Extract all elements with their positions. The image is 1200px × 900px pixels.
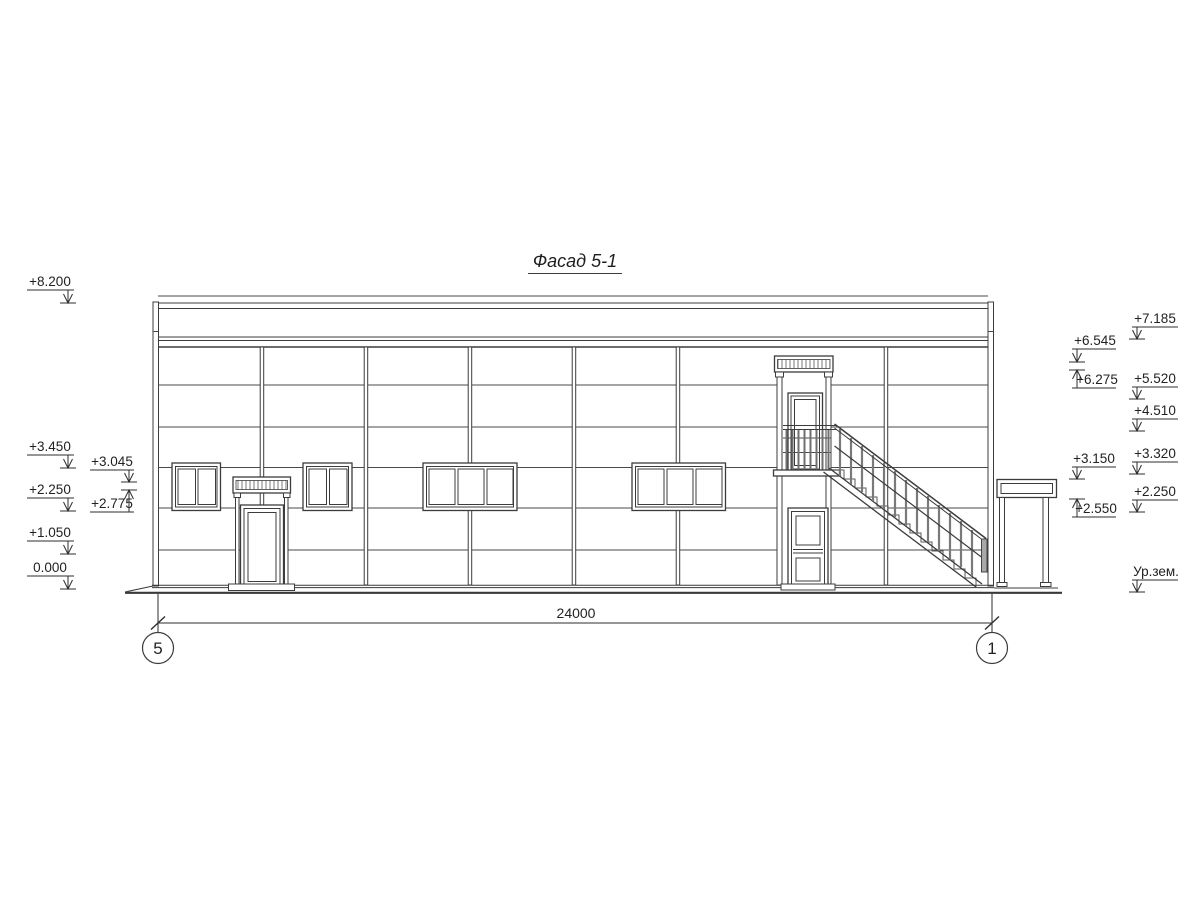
window-frame (172, 463, 221, 511)
axis-label-left: 5 (153, 639, 162, 658)
window-frame (632, 463, 726, 511)
tower-canopy-hatch (778, 360, 831, 369)
right-corner-post (988, 302, 994, 586)
elevation-value: +2.250 (29, 482, 71, 497)
porch-post (1043, 498, 1049, 583)
drawing-title: Фасад 5-1 (533, 251, 617, 271)
tower-post (777, 377, 782, 585)
elevation-mark: +6.275 (1069, 370, 1118, 388)
window-frame (303, 463, 352, 511)
sheet-background (0, 0, 1200, 900)
canopy-post (285, 498, 289, 586)
porch-post (1000, 498, 1005, 583)
elevation-value: +3.450 (29, 439, 71, 454)
drawing-title-group: Фасад 5-1 (528, 251, 622, 274)
elevation-value: +8.200 (29, 274, 71, 289)
elevation-value: +1.050 (29, 525, 71, 540)
ground-level-label: Ур.зем. (1133, 564, 1179, 579)
stair-rail-end-post (982, 539, 988, 572)
elevation-value: 0.000 (33, 560, 67, 575)
left-corner-post (153, 302, 159, 586)
elevation-value: +3.150 (1073, 451, 1115, 466)
porch-post-base (997, 583, 1007, 587)
elevation-value: +2.550 (1075, 501, 1117, 516)
elevation-value: +6.545 (1074, 333, 1116, 348)
entrance-canopy-hatch (236, 481, 288, 490)
facade-drawing: Фасад 5-1 (0, 0, 1200, 900)
tower-post-cap (825, 372, 833, 377)
entrance-door-frame (241, 505, 284, 585)
entrance-threshold (229, 584, 295, 591)
dimension-value: 24000 (557, 605, 596, 621)
axis-label-right: 1 (987, 639, 996, 658)
window-4 (632, 463, 726, 511)
elevation-value: +2.775 (91, 496, 133, 511)
elevation-value: +5.520 (1134, 371, 1176, 386)
mullion (572, 347, 576, 585)
window-2 (303, 463, 352, 511)
elevation-value: +2.250 (1134, 484, 1176, 499)
porch-canopy (997, 480, 1057, 498)
elevation-mark: +2.550 (1069, 499, 1117, 517)
mullion (364, 347, 368, 585)
elevation-value: +4.510 (1134, 403, 1176, 418)
facade-drawing-sheet: Фасад 5-1 (0, 0, 1200, 900)
tower-threshold (781, 584, 835, 590)
canopy-post-cap (234, 493, 241, 498)
lower-door-frame (788, 508, 828, 585)
elevation-value: +3.320 (1134, 446, 1176, 461)
porch-post-base (1041, 583, 1052, 587)
stair-tower (774, 356, 840, 590)
window-3 (423, 463, 517, 511)
window-frame (423, 463, 517, 511)
elevation-value: +7.185 (1134, 311, 1176, 326)
balcony-platform (774, 470, 840, 476)
tower-post-cap (776, 372, 784, 377)
window-1 (172, 463, 221, 511)
canopy-post (236, 498, 240, 586)
elevation-value: +6.275 (1076, 372, 1118, 387)
canopy-post-cap (284, 493, 291, 498)
elevation-value: +3.045 (91, 454, 133, 469)
